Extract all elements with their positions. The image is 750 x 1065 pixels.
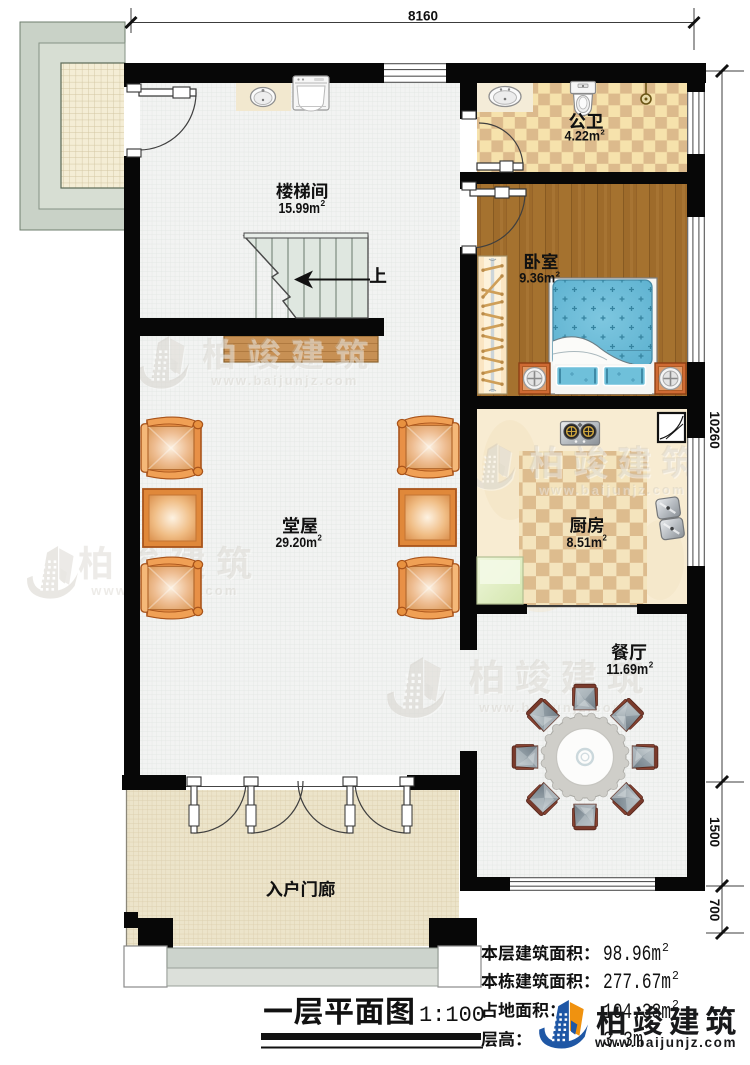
svg-text:2: 2 [672, 970, 679, 983]
svg-text:277.67m: 277.67m [603, 970, 671, 995]
svg-text:11.69m: 11.69m [606, 662, 648, 678]
svg-text:9.36m: 9.36m [519, 271, 555, 286]
svg-text:4.22m: 4.22m [565, 129, 601, 144]
svg-text:2: 2 [601, 127, 605, 136]
svg-text:2: 2 [649, 660, 654, 669]
svg-text:www.baijunjz.com: www.baijunjz.com [210, 373, 358, 388]
svg-text:www.baijunjz.com: www.baijunjz.com [537, 482, 685, 497]
svg-text:15.99m: 15.99m [279, 200, 321, 217]
svg-text:2: 2 [603, 533, 608, 542]
svg-text:1500: 1500 [707, 817, 722, 847]
svg-text:1:100: 1:100 [419, 1003, 485, 1028]
svg-text:98.96m: 98.96m [603, 942, 661, 967]
svg-text:8160: 8160 [408, 9, 438, 24]
svg-text:8.51m: 8.51m [567, 534, 603, 550]
svg-text:29.20m: 29.20m [276, 534, 318, 550]
svg-text:2: 2 [321, 198, 326, 208]
svg-text:2: 2 [662, 942, 669, 955]
svg-text:2: 2 [318, 533, 323, 542]
svg-text:2: 2 [556, 269, 560, 278]
svg-text:10260: 10260 [707, 411, 722, 449]
svg-text:700: 700 [707, 899, 722, 922]
svg-text:www.baijunjz.com: www.baijunjz.com [594, 1035, 737, 1050]
